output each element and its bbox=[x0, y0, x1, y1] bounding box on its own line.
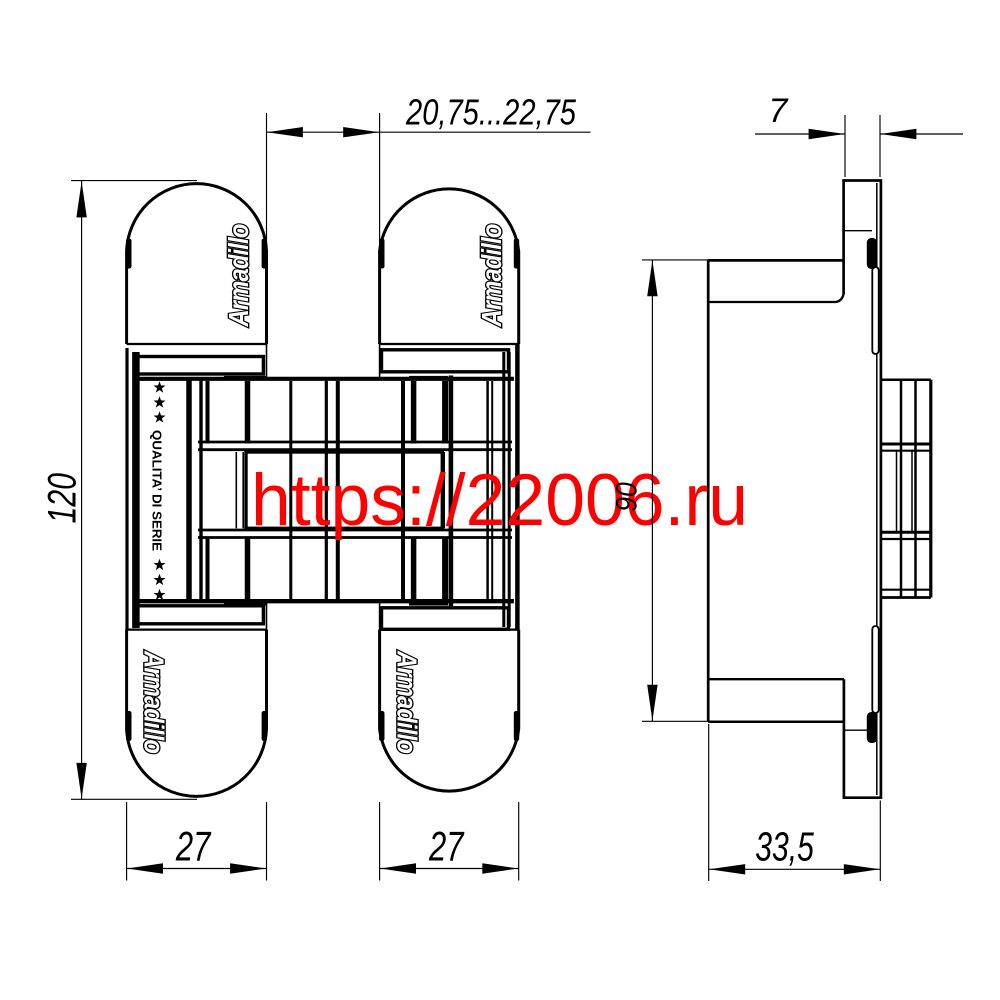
svg-text:7: 7 bbox=[769, 92, 789, 130]
svg-text:QUALITA’ DI SERIE: QUALITA’ DI SERIE bbox=[150, 430, 165, 551]
svg-text:Armadillo: Armadillo bbox=[392, 650, 423, 754]
svg-text:Armadillo: Armadillo bbox=[223, 224, 254, 328]
svg-text:120: 120 bbox=[40, 473, 84, 524]
svg-text:27: 27 bbox=[175, 823, 211, 870]
svg-text:Armadillo: Armadillo bbox=[476, 224, 507, 328]
svg-text:https://22006.ru: https://22006.ru bbox=[251, 460, 748, 541]
svg-text:90: 90 bbox=[611, 482, 644, 512]
svg-text:33,5: 33,5 bbox=[755, 824, 814, 870]
svg-text:20,75...22,75: 20,75...22,75 bbox=[405, 92, 576, 133]
svg-text:27: 27 bbox=[428, 823, 464, 870]
svg-text:Armadillo: Armadillo bbox=[139, 650, 170, 754]
